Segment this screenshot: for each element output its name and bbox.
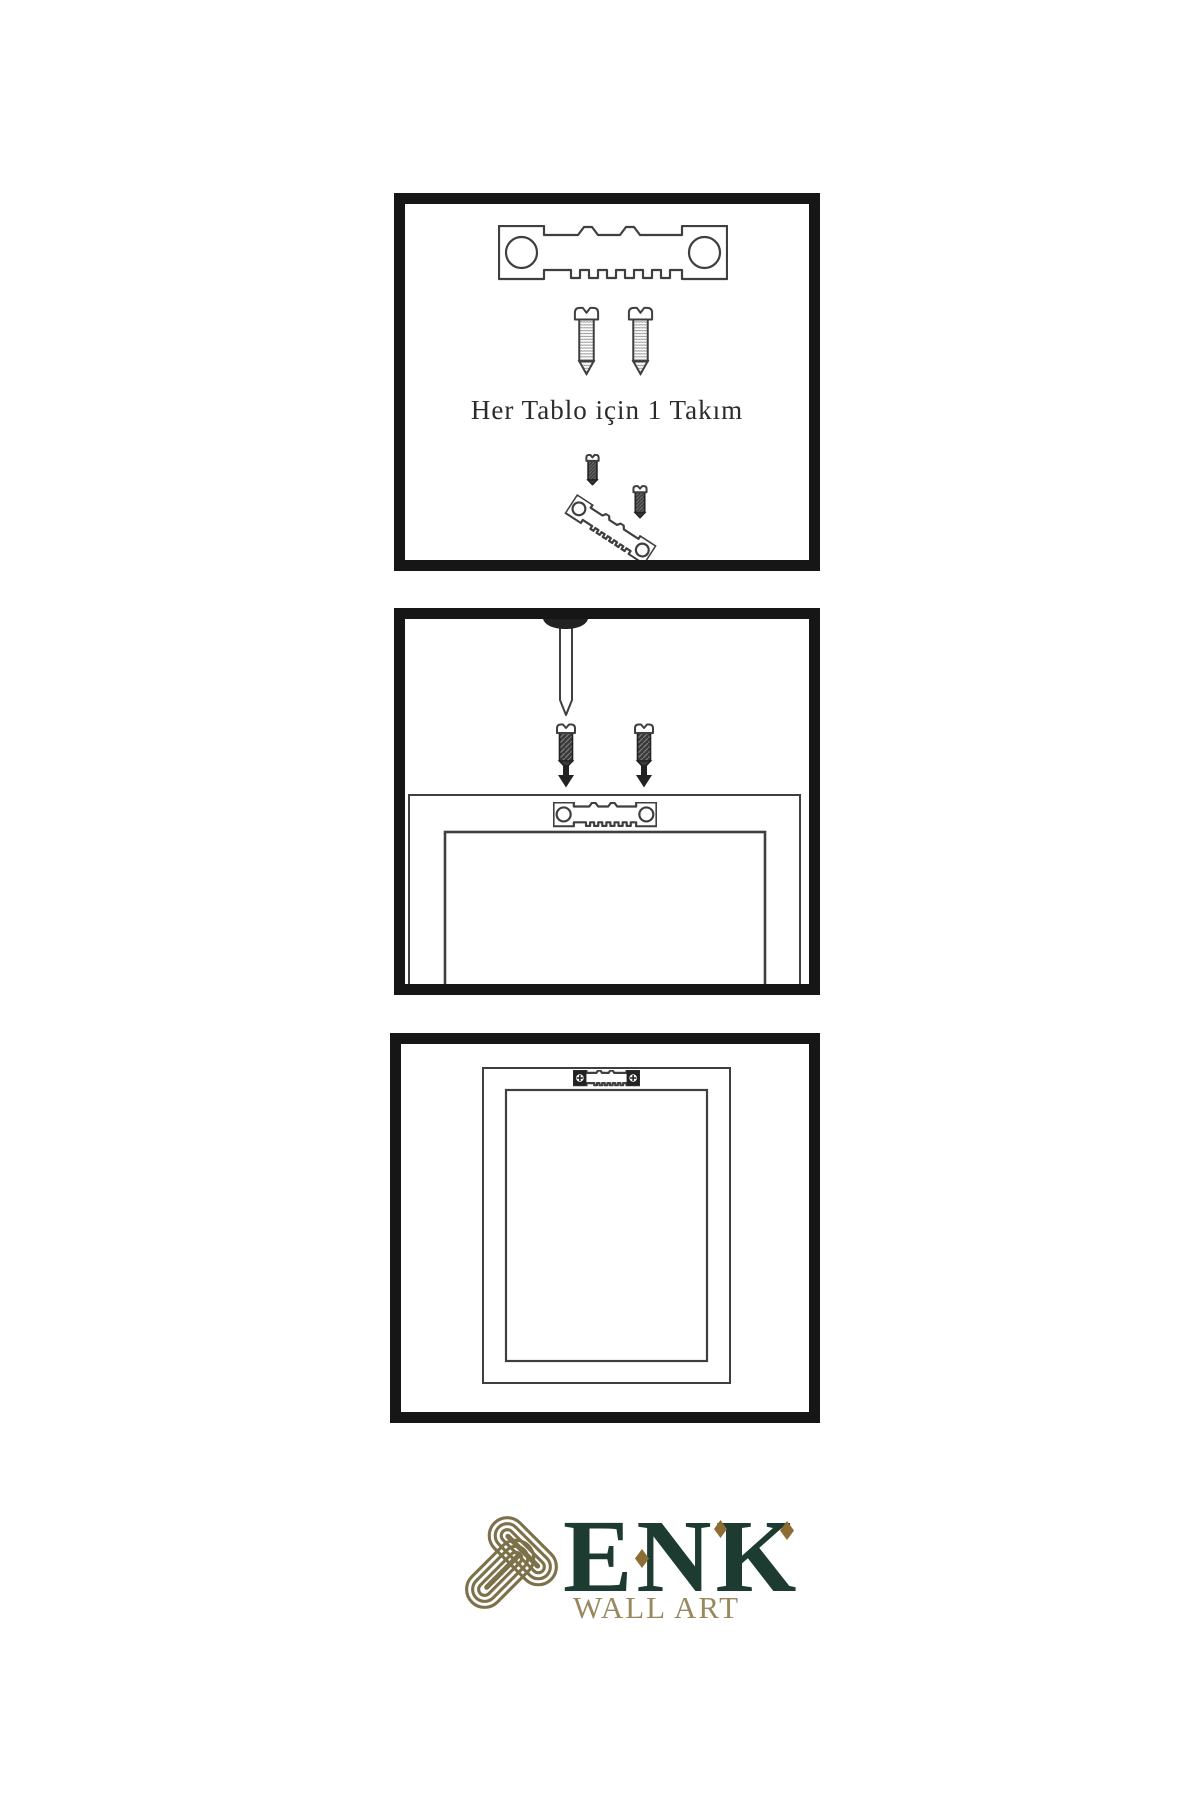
- picture-frame-back-icon: [483, 1068, 730, 1383]
- arrow-down-icon: [636, 765, 652, 788]
- instruction-sheet: Her Tablo için 1 Takım: [0, 0, 1200, 1800]
- mount-diagram: [405, 619, 809, 984]
- brand-subtitle: WALL ART: [573, 1592, 740, 1623]
- brand-logo: ENK WALL ART: [437, 1495, 817, 1655]
- screw-icon: [586, 455, 598, 485]
- nail-icon: [543, 619, 588, 715]
- arrow-down-icon: [558, 765, 574, 788]
- screw-icon: [633, 486, 646, 518]
- sawtooth-hanger-installed-icon: [573, 1070, 639, 1085]
- screw-icon: [635, 725, 653, 769]
- kit-diagram: [405, 204, 809, 560]
- screw-icon: [575, 308, 598, 374]
- screw-icon: [629, 308, 652, 374]
- step1-kit-panel: Her Tablo için 1 Takım: [394, 193, 820, 571]
- screw-icon: [557, 725, 575, 769]
- step2-mount-panel: [394, 608, 820, 995]
- sawtooth-hanger-icon: [499, 226, 727, 279]
- sawtooth-hanger-icon: [553, 802, 656, 826]
- screw-into-tilted-hanger-icon: [565, 455, 656, 560]
- hang-diagram: [401, 1044, 809, 1412]
- picture-frame-back-icon: [409, 795, 800, 984]
- kit-caption: Her Tablo için 1 Takım: [405, 395, 809, 426]
- knot-icon: [437, 1499, 569, 1635]
- step3-hang-panel: [390, 1033, 820, 1423]
